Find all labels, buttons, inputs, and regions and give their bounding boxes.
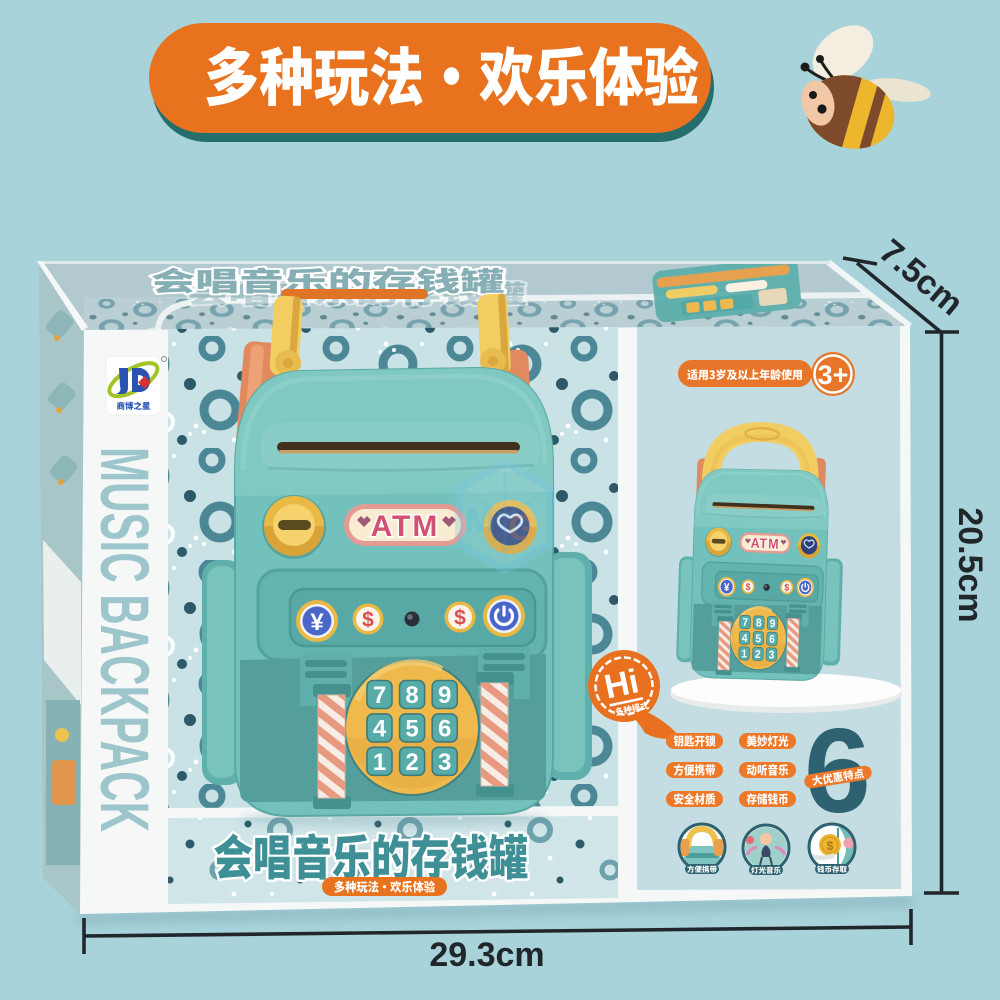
svg-text:8: 8	[405, 682, 418, 709]
svg-text:$: $	[454, 607, 466, 630]
svg-text:$: $	[362, 609, 374, 632]
svg-text:6: 6	[769, 633, 775, 646]
svg-text:2: 2	[405, 749, 418, 776]
svg-text:20.5cm: 20.5cm	[951, 507, 989, 622]
svg-text:5: 5	[755, 633, 761, 646]
svg-text:MUSIC BACKPACK: MUSIC BACKPACK	[85, 447, 162, 832]
svg-text:1: 1	[373, 749, 386, 776]
svg-text:8: 8	[756, 617, 762, 630]
svg-text:3: 3	[438, 749, 451, 776]
svg-text:1: 1	[741, 648, 747, 661]
svg-text:M: M	[465, 499, 495, 540]
svg-text:29.3cm: 29.3cm	[429, 936, 544, 974]
svg-text:¥: ¥	[724, 581, 730, 594]
svg-text:2: 2	[755, 648, 761, 661]
svg-text:G: G	[508, 507, 536, 548]
svg-text:5: 5	[405, 715, 418, 742]
svg-text:ATM: ATM	[371, 510, 440, 543]
svg-text:7: 7	[373, 682, 386, 709]
svg-text:9: 9	[438, 682, 451, 709]
svg-text:7: 7	[742, 616, 748, 629]
svg-text:4: 4	[742, 632, 748, 645]
svg-text:¥: ¥	[310, 609, 324, 636]
svg-text:4: 4	[373, 715, 387, 742]
svg-text:3+: 3+	[818, 360, 849, 390]
svg-text:ATM: ATM	[750, 535, 779, 552]
svg-text:3: 3	[768, 649, 774, 662]
svg-text:9: 9	[769, 617, 775, 630]
svg-text:6: 6	[438, 715, 451, 742]
svg-text:$: $	[827, 839, 834, 853]
